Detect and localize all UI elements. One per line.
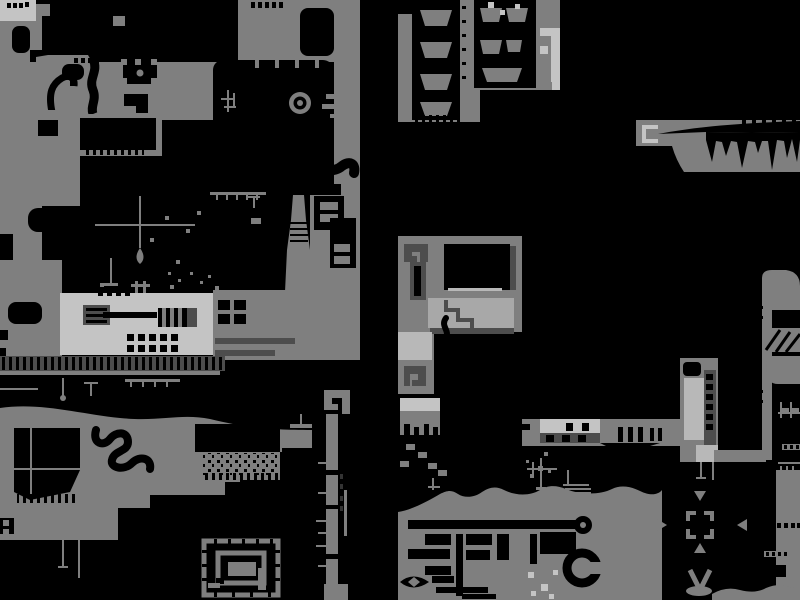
dish [686, 586, 712, 596]
window-room [121, 59, 157, 84]
ring-emblem [289, 92, 311, 114]
train-structure [522, 419, 684, 446]
boot-void [14, 428, 80, 500]
game-map-screen[interactable] [0, 0, 800, 600]
topleft-light-block [0, 0, 36, 21]
rubble-patch [200, 452, 280, 480]
world-map-canvas[interactable] [0, 0, 800, 600]
